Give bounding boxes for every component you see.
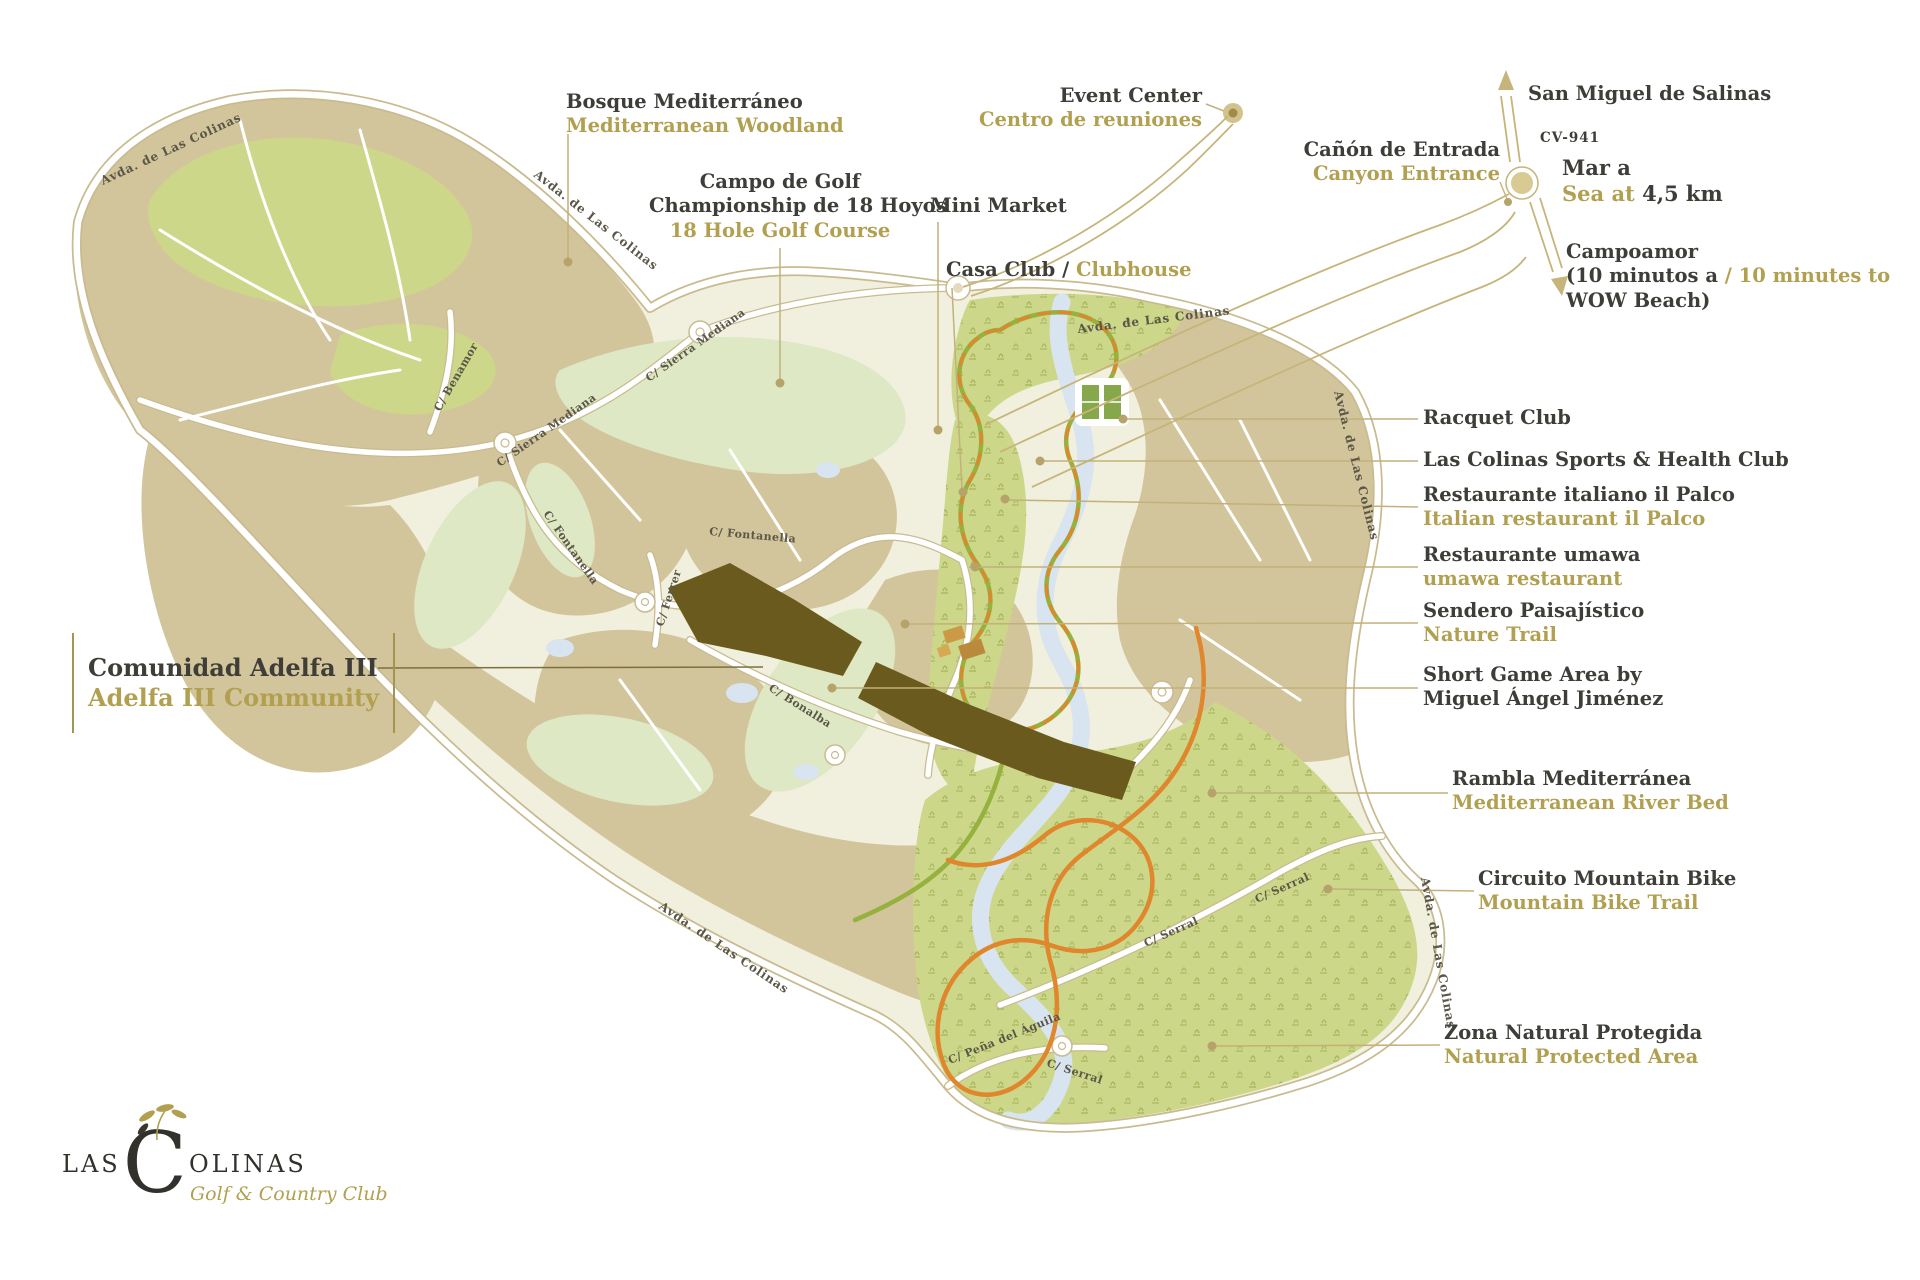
dot-short-game xyxy=(828,684,837,693)
dot-zona xyxy=(1208,1042,1217,1051)
label-mtb-es: Circuito Mountain Bike xyxy=(1478,867,1736,891)
label-adelfa-es: Comunidad Adelfa III xyxy=(88,653,379,683)
dot-sports-club xyxy=(1036,457,1045,466)
label-il-palco-es: Restaurante italiano il Palco xyxy=(1423,483,1735,507)
logo-word-olinas: OLINAS xyxy=(189,1150,307,1178)
dot-rambla xyxy=(1208,789,1217,798)
label-umawa-en: umawa restaurant xyxy=(1423,567,1641,591)
label-zona-en: Natural Protected Area xyxy=(1444,1045,1702,1069)
dot-casa-club xyxy=(959,488,968,497)
label-sendero-es: Sendero Paisajístico xyxy=(1423,599,1644,623)
label-il-palco: Restaurante italiano il Palco Italian re… xyxy=(1423,483,1735,532)
label-mar-en: Sea at xyxy=(1562,181,1635,206)
label-mar-es: Mar a xyxy=(1562,155,1723,181)
label-san-miguel: San Miguel de Salinas xyxy=(1528,82,1771,106)
arrow-north-icon xyxy=(1498,70,1514,90)
leader-event-center xyxy=(1206,104,1224,111)
label-bosque-mediterraneo: Bosque Mediterráneo Mediterranean Woodla… xyxy=(566,90,844,139)
label-event-center-es: Centro de reuniones xyxy=(979,108,1202,132)
label-cv941: CV-941 xyxy=(1540,130,1600,147)
label-casa-club-es: Casa Club / xyxy=(946,258,1076,281)
dot-bosque xyxy=(564,258,573,267)
label-rambla: Rambla Mediterránea Mediterranean River … xyxy=(1452,767,1729,816)
label-casa-club: Casa Club / Clubhouse xyxy=(946,258,1192,282)
label-bosque-en: Mediterranean Woodland xyxy=(566,114,844,138)
label-mini-market: Mini Market xyxy=(930,194,1067,218)
label-bosque-es: Bosque Mediterráneo xyxy=(566,90,844,114)
leader-zona xyxy=(1216,1045,1440,1046)
label-mar-dist: 4,5 km xyxy=(1635,181,1723,206)
label-mtb: Circuito Mountain Bike Mountain Bike Tra… xyxy=(1478,867,1736,916)
label-short-game-l2: Miguel Ángel Jiménez xyxy=(1423,687,1663,711)
label-il-palco-en: Italian restaurant il Palco xyxy=(1423,507,1735,531)
label-campo-de-golf: Campo de Golf Championship de 18 Hoyos 1… xyxy=(649,170,911,243)
label-campoamor-l2b: / 10 minutes to xyxy=(1725,264,1890,287)
label-mtb-en: Mountain Bike Trail xyxy=(1478,891,1736,915)
label-event-center-en: Event Center xyxy=(979,84,1202,108)
canyon-entrance-dot xyxy=(1504,198,1512,206)
label-sendero-en: Nature Trail xyxy=(1423,623,1644,647)
label-campoamor-l3: WOW Beach) xyxy=(1566,289,1890,313)
label-umawa: Restaurante umawa umawa restaurant xyxy=(1423,543,1641,592)
logo-tagline: Golf & Country Club xyxy=(190,1183,388,1205)
label-rambla-es: Rambla Mediterránea xyxy=(1452,767,1729,791)
dot-campo-golf xyxy=(776,379,785,388)
label-campoamor-l2a: (10 minutos a xyxy=(1566,264,1725,287)
label-comunidad-adelfa: Comunidad Adelfa III Adelfa III Communit… xyxy=(72,633,395,733)
dot-mtb xyxy=(1324,885,1333,894)
label-umawa-es: Restaurante umawa xyxy=(1423,543,1641,567)
label-canon-entrada: Cañón de Entrada Canyon Entrance xyxy=(1304,138,1500,187)
dot-racquet xyxy=(1119,415,1128,424)
label-rambla-en: Mediterranean River Bed xyxy=(1452,791,1729,815)
label-mar-a: Mar a Sea at 4,5 km xyxy=(1562,155,1723,208)
label-sports-club: Las Colinas Sports & Health Club xyxy=(1423,448,1789,472)
label-racquet-club: Racquet Club xyxy=(1423,406,1571,430)
leader-adelfa xyxy=(378,667,763,668)
label-casa-club-en: Clubhouse xyxy=(1076,258,1192,281)
label-short-game: Short Game Area by Miguel Ángel Jiménez xyxy=(1423,663,1663,712)
label-zona-es: Zona Natural Protegida xyxy=(1444,1021,1702,1045)
dot-mini-market xyxy=(934,426,943,435)
label-sendero: Sendero Paisajístico Nature Trail xyxy=(1423,599,1644,648)
label-campo-en: 18 Hole Golf Course xyxy=(649,219,911,243)
label-zona-natural: Zona Natural Protegida Natural Protected… xyxy=(1444,1021,1702,1070)
event-center-marker xyxy=(1223,103,1243,123)
dot-il-palco xyxy=(1001,495,1010,504)
leader-sendero xyxy=(909,623,1418,624)
label-campoamor: Campoamor (10 minutos a / 10 minutes to … xyxy=(1566,240,1890,313)
las-colinas-logo: LAS C OLINAS Golf & Country Club xyxy=(62,1128,388,1205)
label-canon-en: Canyon Entrance xyxy=(1304,162,1500,186)
label-canon-es: Cañón de Entrada xyxy=(1304,138,1500,162)
label-campo-es1: Campo de Golf xyxy=(649,170,911,194)
label-short-game-l1: Short Game Area by xyxy=(1423,663,1663,687)
dot-umawa xyxy=(971,563,980,572)
dot-sendero xyxy=(901,620,910,629)
label-adelfa-en: Adelfa III Community xyxy=(88,683,379,713)
las-colinas-resort-map: Avda. de Las Colinas Avda. de Las Colina… xyxy=(0,0,1920,1280)
label-event-center: Event Center Centro de reuniones xyxy=(979,84,1202,133)
logo-word-las: LAS xyxy=(62,1150,121,1178)
label-campo-es2: Championship de 18 Hoyos xyxy=(649,194,911,218)
label-campoamor-l1: Campoamor xyxy=(1566,240,1890,264)
